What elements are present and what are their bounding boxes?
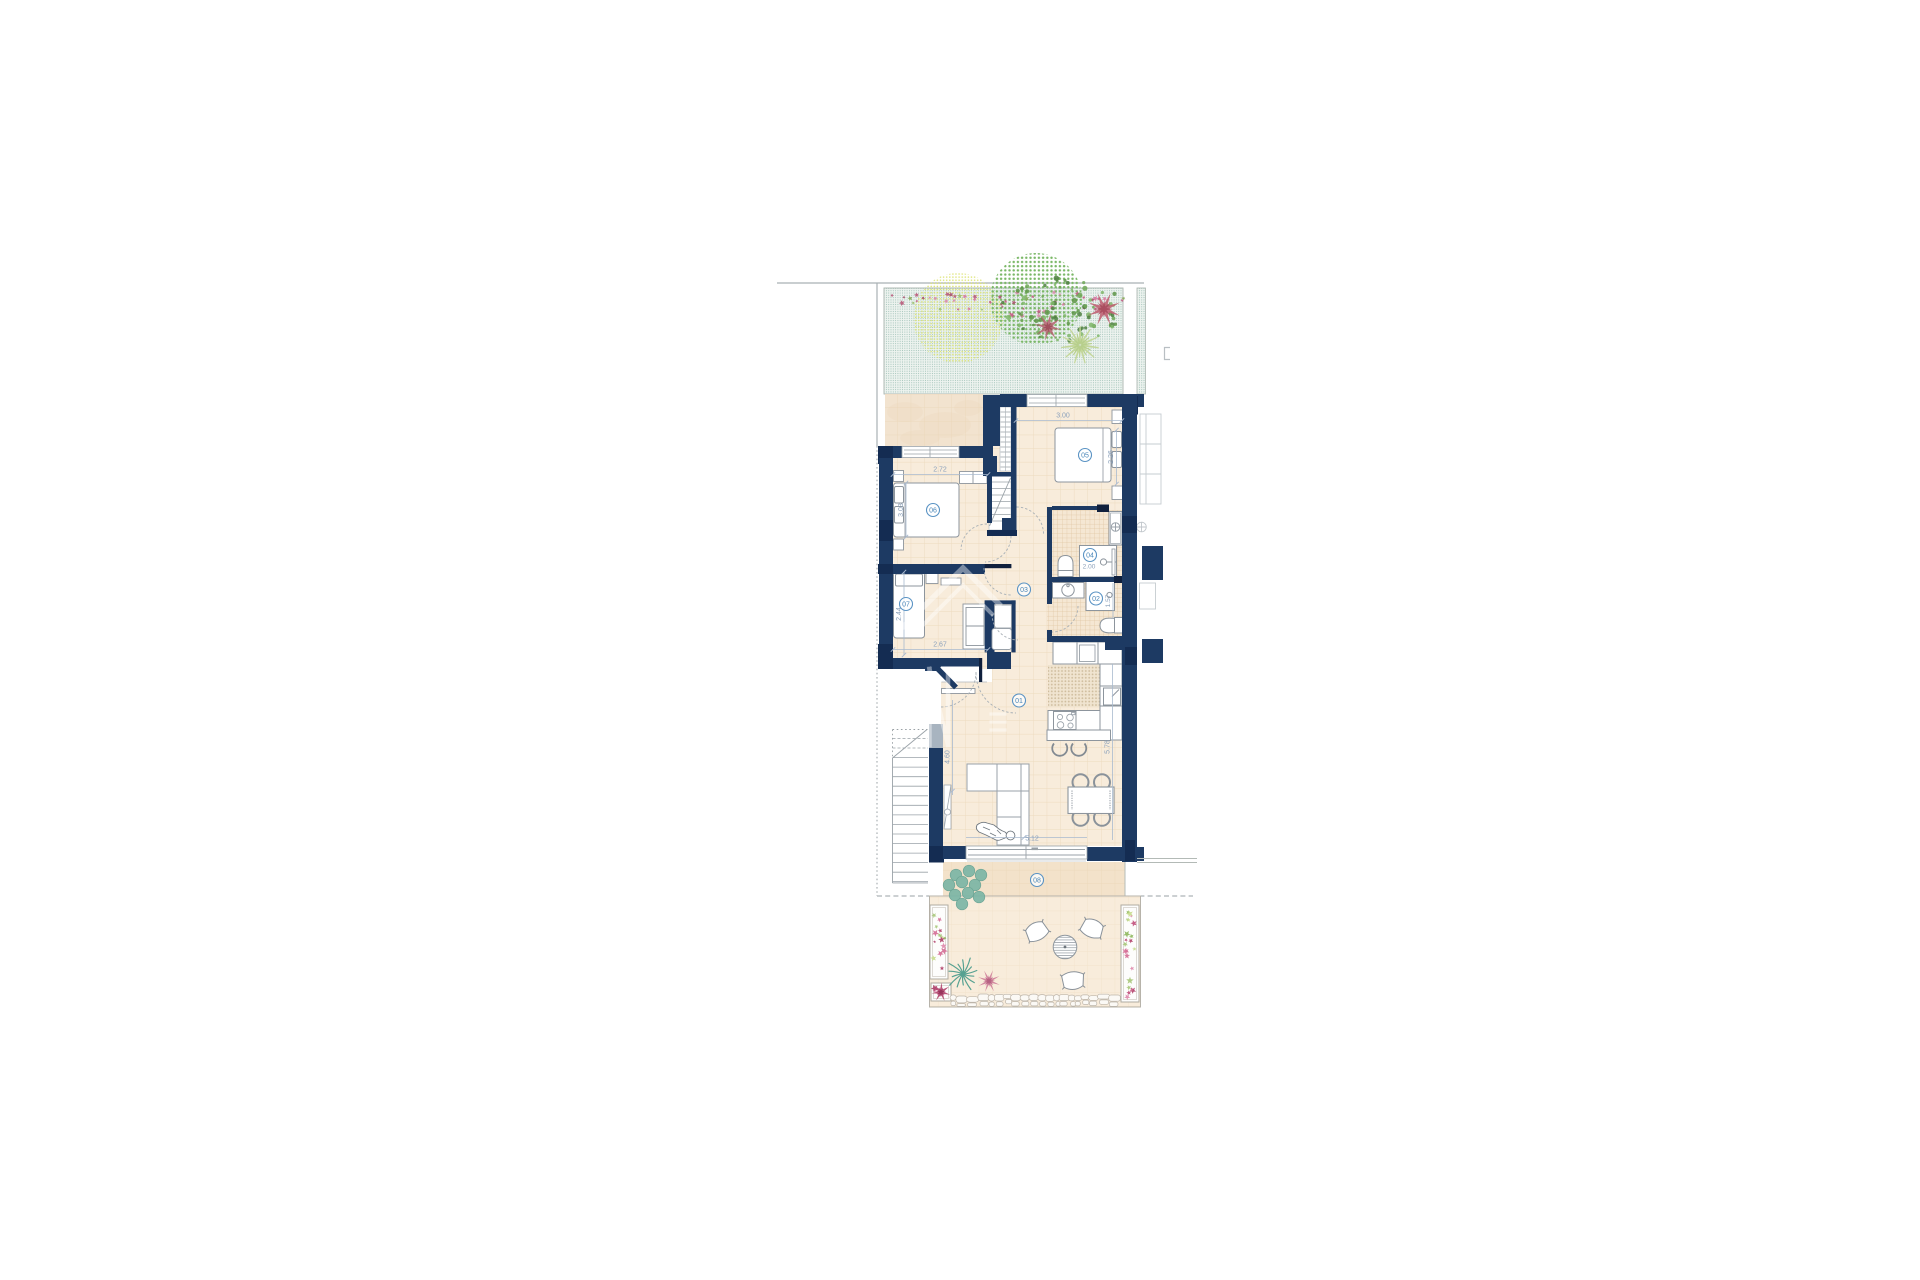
svg-text:2.26: 2.26 — [1108, 450, 1115, 464]
svg-text:08: 08 — [1033, 877, 1041, 884]
svg-text:02: 02 — [1092, 596, 1100, 603]
svg-text:3.03: 3.03 — [898, 503, 905, 517]
svg-text:2.67: 2.67 — [933, 642, 947, 649]
svg-text:2.00: 2.00 — [1083, 564, 1096, 571]
svg-text:01: 01 — [1015, 698, 1023, 705]
svg-text:2.72: 2.72 — [933, 467, 947, 474]
svg-text:05: 05 — [1081, 452, 1089, 459]
svg-text:5.12: 5.12 — [1025, 836, 1039, 843]
svg-text:03: 03 — [1020, 587, 1028, 594]
svg-text:07: 07 — [902, 601, 910, 608]
svg-text:3.00: 3.00 — [1056, 413, 1070, 420]
svg-text:5.78: 5.78 — [1105, 740, 1112, 754]
svg-text:4.60: 4.60 — [945, 750, 952, 764]
svg-text:06: 06 — [929, 507, 937, 514]
svg-text:1.57: 1.57 — [1105, 594, 1112, 607]
svg-text:04: 04 — [1086, 552, 1094, 559]
